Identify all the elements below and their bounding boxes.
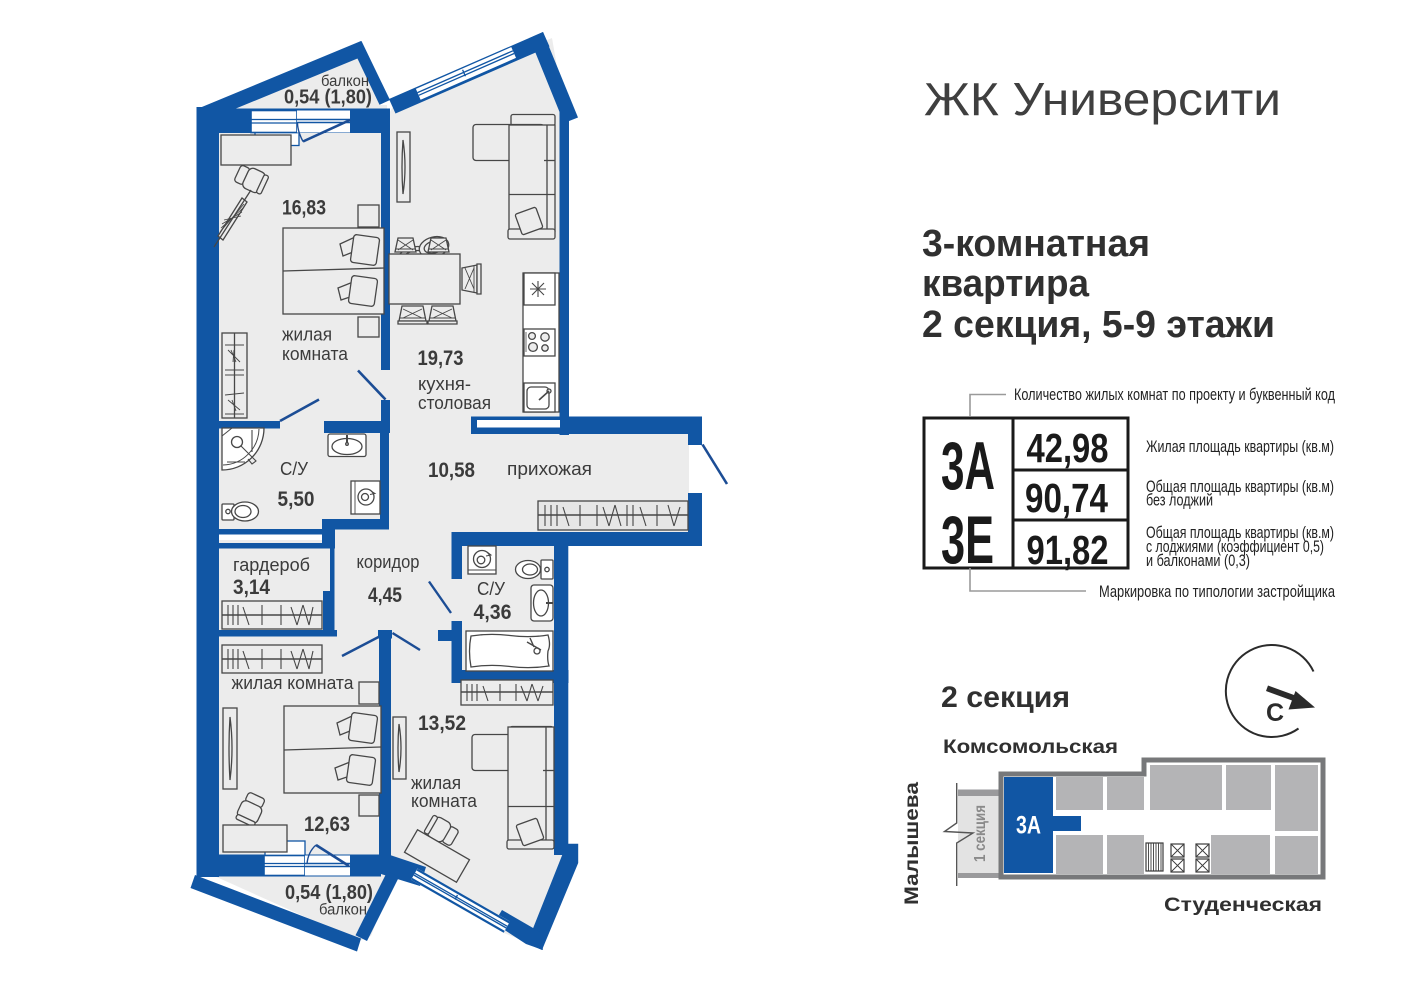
svg-text:жилая: жилая — [282, 325, 332, 345]
svg-text:С/У: С/У — [477, 579, 506, 599]
svg-text:3А: 3А — [941, 428, 995, 504]
svg-text:4,36: 4,36 — [474, 601, 512, 624]
svg-text:5,50: 5,50 — [278, 488, 315, 511]
svg-text:квартира: квартира — [922, 263, 1090, 305]
svg-text:кухня-: кухня- — [418, 374, 471, 394]
svg-text:Малышева: Малышева — [902, 781, 923, 905]
svg-text:2 секция, 5-9 этажи: 2 секция, 5-9 этажи — [922, 304, 1275, 346]
svg-text:3-комнатная: 3-комнатная — [922, 223, 1150, 265]
svg-text:90,74: 90,74 — [1025, 475, 1108, 521]
svg-text:жилая комната: жилая комната — [232, 673, 355, 693]
svg-text:комната: комната — [411, 791, 478, 811]
svg-text:16,83: 16,83 — [282, 197, 326, 220]
svg-text:0,54 (1,80): 0,54 (1,80) — [284, 86, 372, 109]
svg-text:гардероб: гардероб — [233, 555, 310, 575]
svg-text:13,52: 13,52 — [418, 712, 466, 735]
svg-text:12,63: 12,63 — [304, 813, 350, 836]
svg-text:и балконами (0,3): и балконами (0,3) — [1146, 551, 1250, 570]
svg-text:комната: комната — [282, 344, 349, 364]
svg-text:2 секция: 2 секция — [941, 681, 1070, 714]
svg-text:С/У: С/У — [280, 459, 309, 479]
svg-text:жилая: жилая — [411, 773, 461, 793]
svg-text:19,73: 19,73 — [418, 347, 464, 370]
svg-text:С: С — [1266, 699, 1284, 727]
svg-text:3А: 3А — [1016, 812, 1041, 840]
svg-text:Жилая площадь квартиры (кв.м): Жилая площадь квартиры (кв.м) — [1146, 437, 1334, 456]
svg-text:столовая: столовая — [418, 393, 491, 413]
svg-text:Комсомольская: Комсомольская — [943, 737, 1118, 758]
svg-text:3Е: 3Е — [941, 502, 994, 578]
svg-text:91,82: 91,82 — [1027, 527, 1109, 573]
svg-text:прихожая: прихожая — [507, 459, 592, 479]
svg-text:без лоджий: без лоджий — [1146, 491, 1213, 510]
svg-text:коридор: коридор — [357, 552, 420, 572]
svg-text:10,58: 10,58 — [428, 459, 475, 482]
svg-text:42,98: 42,98 — [1027, 425, 1109, 471]
svg-text:Маркировка по типологии застро: Маркировка по типологии застройщика — [1099, 582, 1335, 601]
svg-text:3,14: 3,14 — [233, 576, 270, 599]
svg-text:Количество жилых комнат по про: Количество жилых комнат по проекту и бук… — [1014, 385, 1335, 404]
svg-text:ЖК Университи: ЖК Университи — [924, 73, 1281, 125]
svg-text:балкон: балкон — [319, 902, 367, 919]
svg-text:4,45: 4,45 — [368, 584, 402, 607]
svg-text:1 секция: 1 секция — [972, 805, 989, 862]
svg-text:Студенческая: Студенческая — [1164, 895, 1322, 916]
